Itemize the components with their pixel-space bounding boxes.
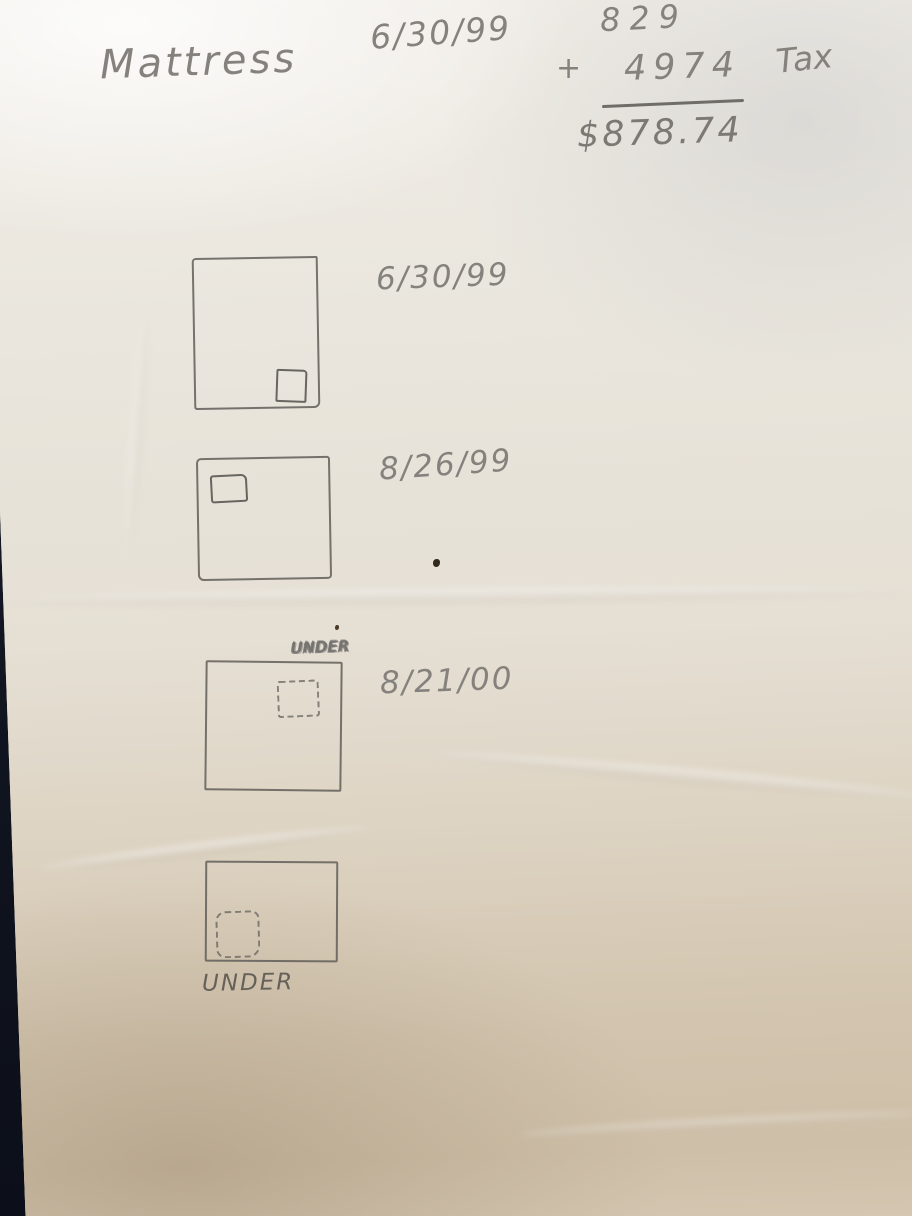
rotation-date-1: 6/30/99: [375, 260, 510, 296]
mattress-diagram-3: [204, 660, 342, 791]
mattress-tag-bottom-right: [275, 369, 307, 403]
paper-sheet: Mattress 6/30/99 829 + 4974 Tax $878.74 …: [0, 0, 912, 1216]
plus-sign: +: [556, 54, 581, 84]
tax-amount: 4974: [623, 48, 741, 87]
rotation-date-2: 8/26/99: [378, 445, 513, 485]
paper-speck: [433, 559, 440, 567]
tax-label: Tax: [774, 39, 834, 78]
mattress-diagram-2: [196, 456, 332, 581]
photo-of-handwritten-note: Mattress 6/30/99 829 + 4974 Tax $878.74 …: [0, 0, 912, 1216]
mattress-diagram-4: [205, 861, 339, 963]
mattress-tag-hidden-top: [277, 679, 321, 718]
note-title: Mattress: [99, 39, 297, 86]
paper-speck: [335, 625, 339, 630]
under-label: UNDER: [202, 971, 295, 996]
paper-crease: [520, 1108, 912, 1141]
sum-underline: [602, 99, 744, 108]
total-amount: $878.74: [576, 113, 743, 154]
under-label-scribbled: UNDER: [291, 639, 350, 656]
mattress-tag-top-left: [210, 474, 248, 504]
mattress-diagram-1: [192, 256, 321, 410]
paper-crease: [430, 746, 912, 805]
paper-crease: [0, 583, 912, 609]
price-amount: 829: [599, 0, 689, 36]
mattress-tag-hidden-bottom: [215, 910, 260, 958]
paper-crease: [121, 300, 153, 560]
purchase-date: 6/30/99: [369, 11, 512, 54]
rotation-date-3: 8/21/00: [379, 664, 514, 700]
